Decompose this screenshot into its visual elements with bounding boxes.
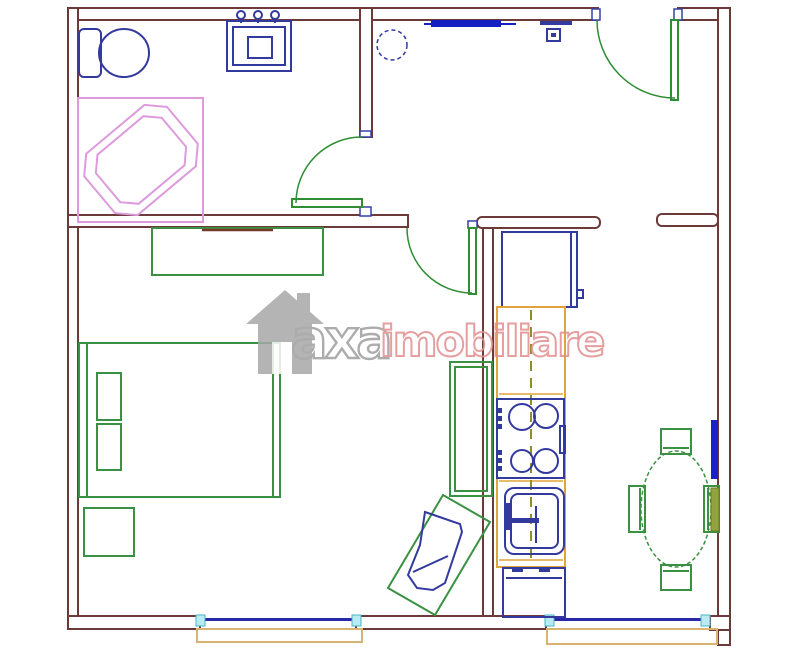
wall-bath-hall-divider — [360, 8, 372, 137]
bedroom-furniture — [79, 228, 492, 615]
bathroom-door — [292, 137, 362, 207]
door-jambs — [360, 9, 682, 228]
wall-right — [718, 8, 730, 645]
dining-table — [641, 451, 711, 567]
wall-shelf — [424, 20, 516, 27]
watermark-suffix: imobiliare — [380, 317, 604, 367]
floor-plan-drawing: axa imobiliare — [0, 0, 800, 652]
burner-icon — [534, 449, 558, 473]
corner-bathtub — [74, 95, 208, 226]
toilet — [79, 29, 149, 77]
armchair — [388, 495, 490, 615]
window-marker-icon — [352, 615, 361, 626]
bedroom-door — [407, 228, 476, 294]
washing-machine — [503, 568, 565, 617]
double-bed — [79, 343, 280, 497]
chair-bottom — [661, 565, 691, 590]
fridge — [502, 232, 583, 307]
watermark-brand: axa — [291, 308, 390, 371]
jamb-entrance-left — [592, 9, 600, 20]
burner-icon — [534, 404, 558, 428]
wall-left — [68, 8, 78, 629]
jamb-bedroom — [468, 221, 477, 228]
wall-dining-stub — [657, 214, 718, 226]
faucet-icon — [512, 518, 539, 523]
kitchen-fixtures — [497, 232, 583, 617]
jamb-bathroom-top — [360, 131, 371, 137]
wall-bottom-right-corner — [710, 616, 730, 630]
dresser — [152, 228, 323, 275]
kitchen-sink — [504, 488, 564, 554]
vanity-sink — [227, 11, 291, 71]
burner-icon — [511, 450, 533, 472]
window-dining-sill — [547, 629, 717, 644]
pillow — [97, 424, 121, 470]
hallway-fixtures — [377, 20, 572, 60]
window-dining-glass — [554, 618, 702, 621]
window-marker-icon — [701, 615, 710, 626]
nightstand — [84, 508, 134, 556]
wall-kitchen-top — [477, 217, 600, 228]
jamb-entrance-right — [674, 9, 682, 20]
wall-heater — [711, 488, 719, 531]
floor-plan-canvas: axa imobiliare — [0, 0, 800, 652]
entrance-door — [597, 20, 678, 100]
jamb-bathroom-bottom — [360, 207, 371, 216]
window-marker-icon — [196, 615, 205, 626]
window-living-sill — [197, 629, 362, 642]
faucet-icon — [504, 503, 512, 530]
pillow — [97, 373, 121, 420]
intercom-unit — [540, 21, 572, 41]
radiator — [711, 420, 718, 479]
ceiling-fixture-icon — [377, 30, 407, 60]
wall-top-left — [68, 8, 598, 20]
wall-bottom-left — [68, 616, 200, 629]
dining-furniture — [629, 420, 719, 590]
window-living-glass — [204, 618, 352, 621]
watermark: axa imobiliare — [246, 290, 604, 374]
bathroom-fixtures — [74, 11, 291, 225]
